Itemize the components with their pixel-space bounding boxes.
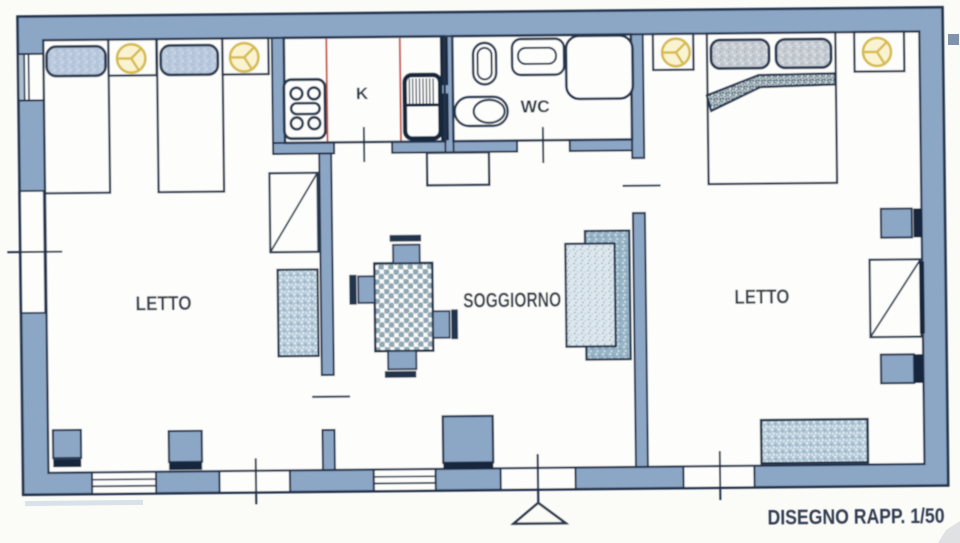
svg-text:DISEGNO RAPP. 1/50: DISEGNO RAPP. 1/50 xyxy=(767,505,944,530)
svg-text:SOGGIORNO: SOGGIORNO xyxy=(463,289,561,313)
svg-text:LETTO: LETTO xyxy=(734,286,789,309)
svg-text:LETTO: LETTO xyxy=(135,293,191,316)
svg-text:K: K xyxy=(356,84,369,103)
svg-text:WC: WC xyxy=(520,96,550,116)
